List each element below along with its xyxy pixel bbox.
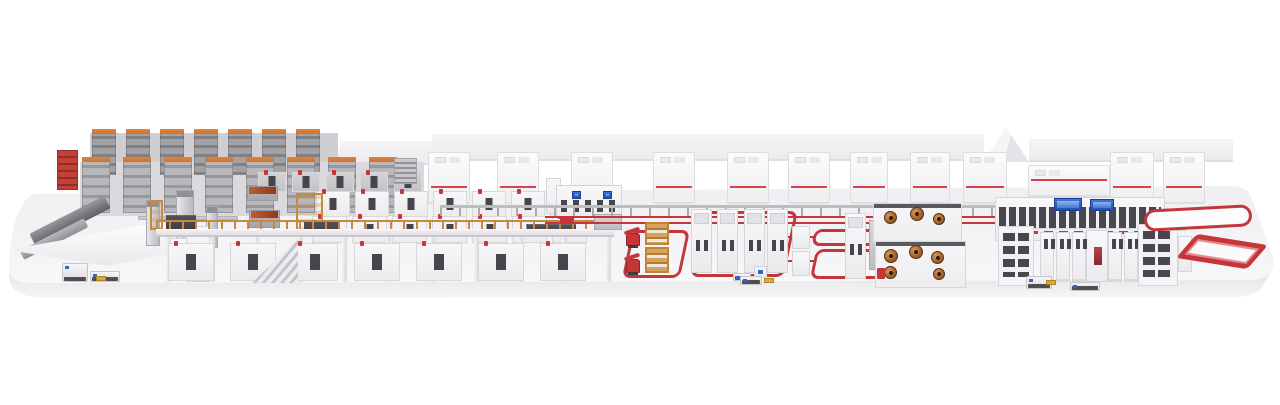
red-storage-rack [57, 150, 78, 190]
underdeck-module [416, 243, 462, 281]
line-screen [1054, 198, 1082, 211]
deck-pillar [342, 237, 347, 282]
finishing-cabinet [1124, 232, 1138, 282]
pallet [96, 276, 106, 281]
process-tower [744, 209, 765, 273]
red-unit [877, 268, 885, 279]
pallet-truck [1070, 282, 1100, 291]
copper-roll [933, 213, 945, 225]
underdeck-module [478, 243, 524, 281]
backline-module [292, 172, 320, 192]
window-tower [1138, 224, 1178, 286]
hmi-screen [603, 191, 612, 199]
storage-tower-front [205, 157, 233, 213]
finishing-cabinet [1072, 232, 1086, 282]
transfer-cart [560, 217, 574, 223]
copper-roll [909, 245, 923, 259]
pallet [764, 278, 774, 283]
mezzanine-deck [156, 229, 614, 237]
production-line-render [0, 0, 1280, 405]
enclosure-cabinet [850, 152, 888, 204]
enclosure-cabinet [727, 152, 769, 204]
copper-roll [933, 268, 945, 280]
copper-roll [884, 249, 898, 263]
agv [62, 263, 88, 282]
robot-arm [626, 259, 640, 273]
pallet [1046, 280, 1056, 285]
copper-roll [910, 207, 924, 221]
pallet-rack [645, 222, 669, 245]
robot-arm [626, 233, 640, 246]
process-tower [691, 209, 712, 273]
enclosure-cabinet [653, 152, 695, 204]
coating-head [247, 186, 278, 201]
cell-cabinet [792, 251, 810, 276]
underdeck-module [354, 243, 400, 281]
copper-roll [884, 211, 897, 224]
hmi-screen [572, 191, 581, 199]
backline-module [326, 172, 354, 192]
enclosure-cabinet [1028, 165, 1110, 197]
enclosure-cabinet [1163, 152, 1205, 204]
pallet-rack [645, 247, 669, 273]
copper-roll [884, 266, 897, 279]
copper-roll [931, 251, 944, 264]
deck-pillar [606, 237, 611, 282]
process-tower [767, 209, 788, 273]
finishing-cabinet [1056, 232, 1070, 282]
underdeck-module [292, 243, 338, 281]
process-tower [845, 213, 866, 279]
underdeck-module [168, 243, 214, 281]
line-screen [1090, 199, 1114, 211]
louver-stack [394, 158, 417, 184]
underdeck-module [540, 243, 586, 281]
cell-cabinet [792, 226, 810, 249]
enclosure-cabinet [910, 152, 950, 204]
center-cabinet [1086, 230, 1108, 282]
finishing-cabinet [1108, 232, 1122, 282]
shuttle-cart [740, 276, 762, 285]
finishing-cabinet [1040, 232, 1054, 282]
process-tower [717, 209, 738, 273]
enclosure-cabinet [788, 152, 830, 204]
